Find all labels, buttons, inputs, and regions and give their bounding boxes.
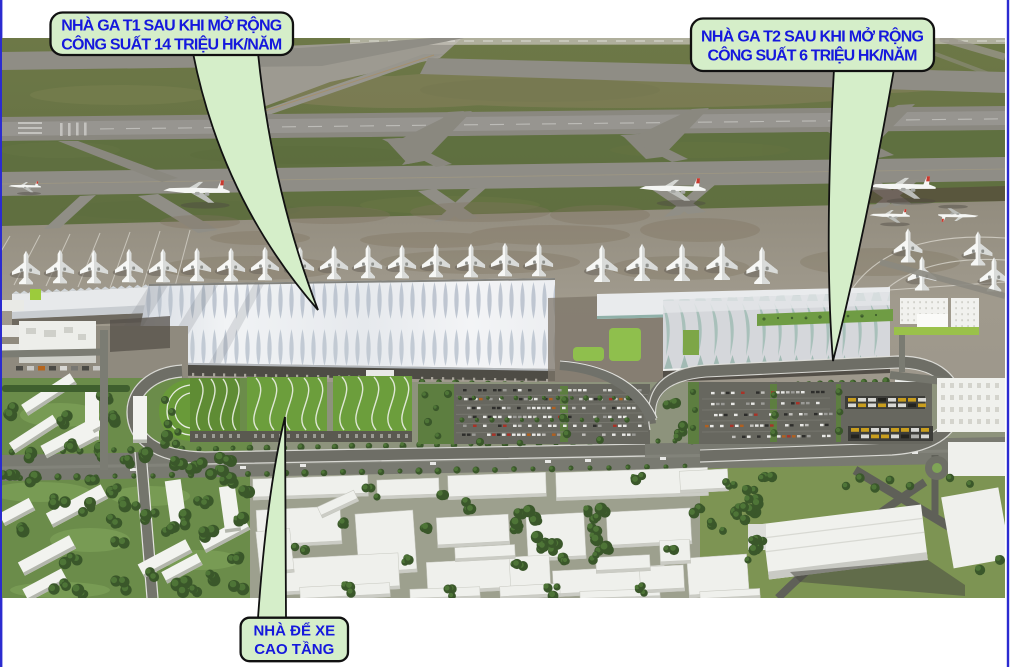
svg-text:CÔNG SUẤT 6 TRIỆU HK/NĂM: CÔNG SUẤT 6 TRIỆU HK/NĂM: [708, 46, 918, 65]
svg-text:NHÀ GA T1 SAU KHI MỞ RỘNG: NHÀ GA T1 SAU KHI MỞ RỘNG: [61, 16, 282, 35]
svg-text:NHÀ GA T2 SAU KHI MỞ RỘNG: NHÀ GA T2 SAU KHI MỞ RỘNG: [701, 27, 924, 46]
svg-text:CAO TẦNG: CAO TẦNG: [254, 641, 334, 658]
svg-text:NHÀ ĐỂ XE: NHÀ ĐỂ XE: [253, 622, 335, 640]
svg-text:CÔNG SUẤT 14 TRIỆU HK/NĂM: CÔNG SUẤT 14 TRIỆU HK/NĂM: [61, 35, 282, 54]
